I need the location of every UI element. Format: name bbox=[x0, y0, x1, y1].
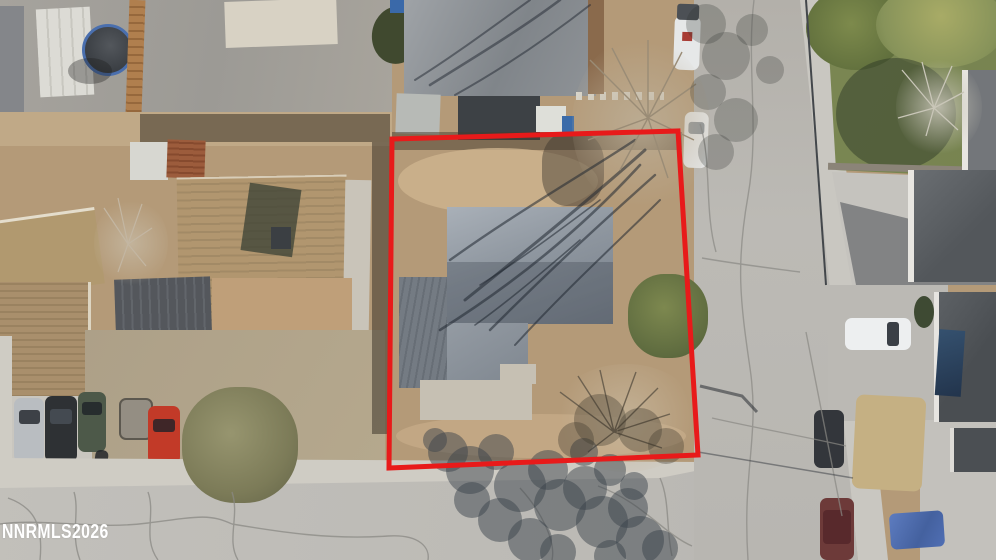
tree-shadow-on-street-north bbox=[686, 4, 784, 170]
mls-watermark: NNRMLS2026 bbox=[2, 521, 109, 544]
roof-branch-shadows bbox=[440, 140, 660, 345]
streetlight-shadow bbox=[700, 386, 757, 412]
overlay-graphics bbox=[0, 0, 996, 560]
north-roof-branch-shadows bbox=[415, 0, 590, 95]
west-tree-branches bbox=[104, 198, 152, 272]
lawn-tree-branches bbox=[898, 62, 964, 136]
aerial-photo: NNRMLS2026 bbox=[0, 0, 996, 560]
